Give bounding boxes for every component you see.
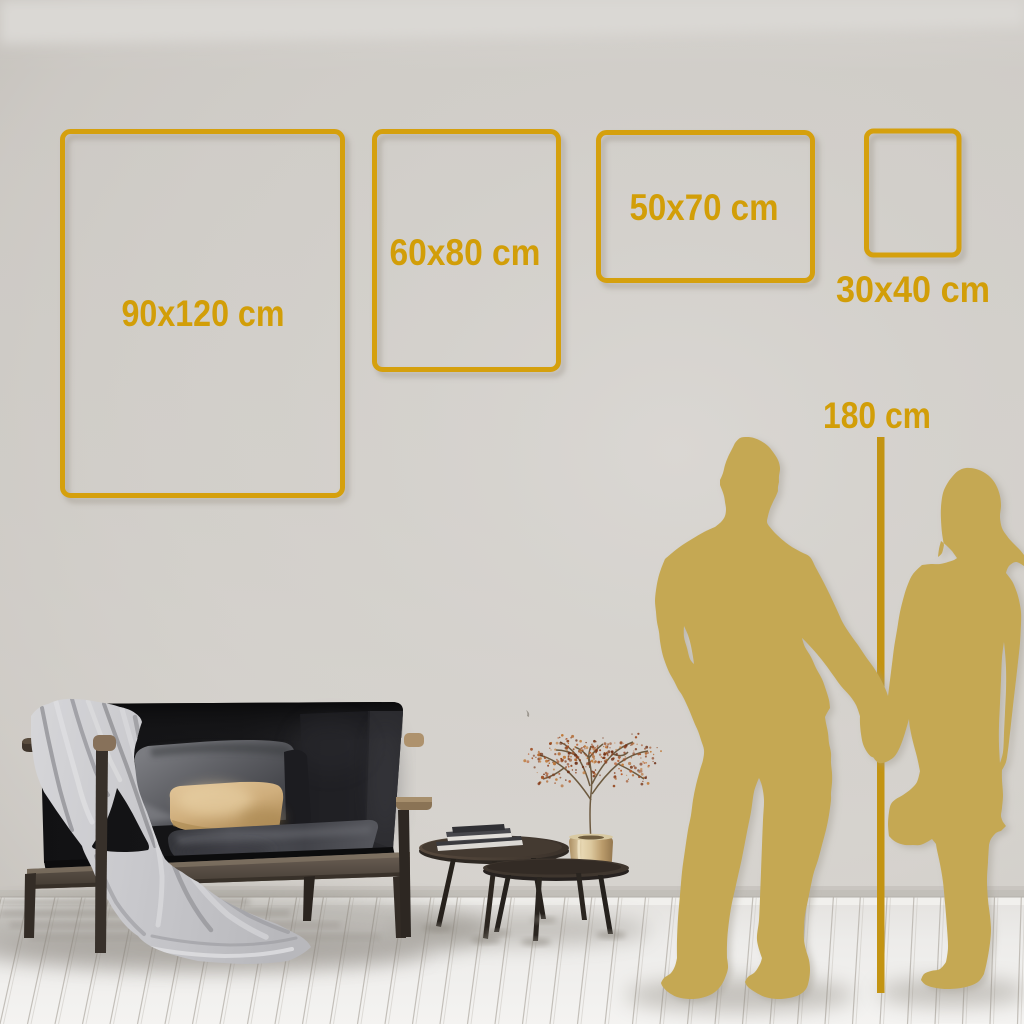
svg-text:180 cm: 180 cm	[823, 395, 931, 436]
svg-text:30x40 cm: 30x40 cm	[836, 269, 990, 310]
svg-text:60x80 cm: 60x80 cm	[390, 232, 541, 273]
svg-text:90x120 cm: 90x120 cm	[122, 293, 285, 334]
svg-text:50x70 cm: 50x70 cm	[630, 187, 779, 228]
